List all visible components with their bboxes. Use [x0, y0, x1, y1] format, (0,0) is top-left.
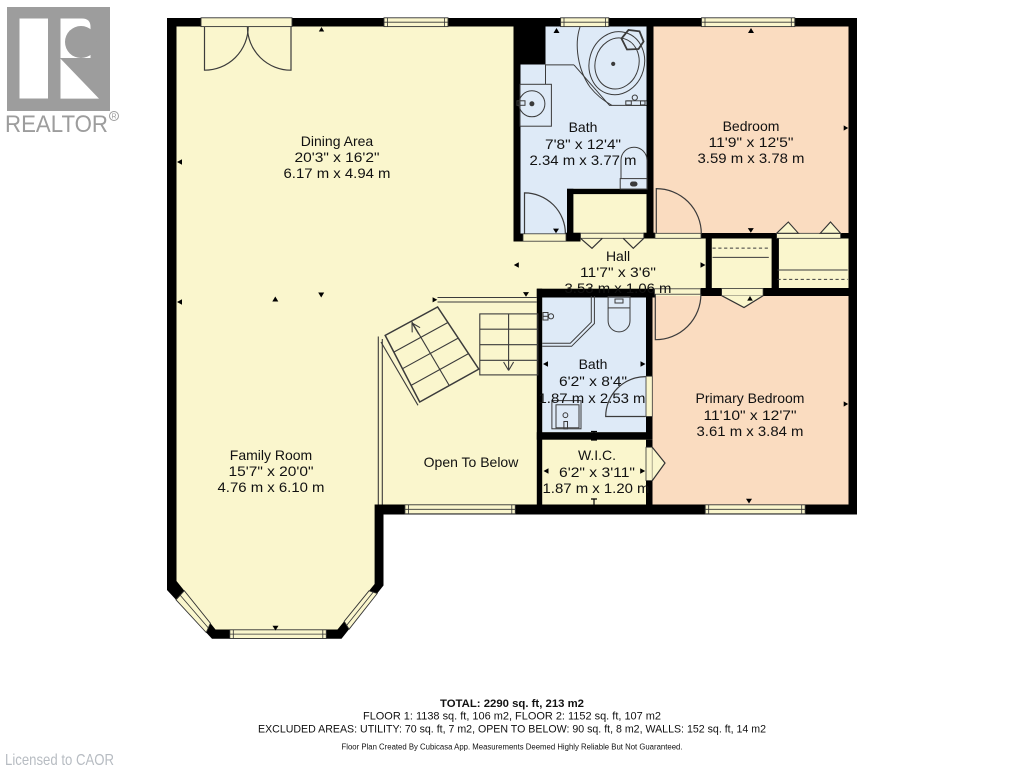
svg-text:Primary Bedroom: Primary Bedroom: [696, 390, 805, 406]
svg-text:3.59 m x 3.78 m: 3.59 m x 3.78 m: [698, 150, 805, 166]
svg-text:R: R: [111, 114, 116, 121]
svg-text:FLOOR 1: 1138 sq. ft, 106 m2,: FLOOR 1: 1138 sq. ft, 106 m2, FLOOR 2: 1…: [363, 711, 661, 723]
svg-text:Floor Plan Created By Cubicasa: Floor Plan Created By Cubicasa App. Meas…: [342, 743, 683, 752]
svg-text:Licensed to CAOR: Licensed to CAOR: [5, 752, 114, 768]
svg-text:1.87 m x 2.53 m: 1.87 m x 2.53 m: [539, 390, 646, 406]
svg-text:W.I.C.: W.I.C.: [578, 447, 616, 463]
svg-text:EXCLUDED AREAS: UTILITY: 70 sq: EXCLUDED AREAS: UTILITY: 70 sq. ft, 7 m2…: [258, 724, 766, 736]
svg-text:2.34 m x 3.77 m: 2.34 m x 3.77 m: [530, 152, 637, 168]
svg-text:15'7" x 20'0": 15'7" x 20'0": [229, 463, 314, 479]
svg-text:Hall: Hall: [606, 248, 630, 264]
svg-text:6.17 m x 4.94 m: 6.17 m x 4.94 m: [284, 165, 391, 181]
svg-text:11'9" x 12'5": 11'9" x 12'5": [709, 134, 794, 150]
svg-text:11'10" x 12'7": 11'10" x 12'7": [704, 407, 797, 423]
svg-text:Bath: Bath: [569, 119, 598, 135]
svg-text:TOTAL: 2290 sq. ft, 213 m2: TOTAL: 2290 sq. ft, 213 m2: [440, 698, 584, 710]
svg-text:3.53 m x 1.06 m: 3.53 m x 1.06 m: [565, 280, 672, 296]
svg-text:20'3" x 16'2": 20'3" x 16'2": [295, 149, 380, 165]
svg-text:7'8" x 12'4": 7'8" x 12'4": [545, 136, 621, 152]
svg-text:6'2" x 3'11": 6'2" x 3'11": [559, 464, 635, 480]
svg-text:6'2" x 8'4": 6'2" x 8'4": [559, 373, 627, 389]
svg-text:1.87 m x 1.20 m: 1.87 m x 1.20 m: [543, 480, 650, 496]
svg-text:11'7" x 3'6": 11'7" x 3'6": [580, 264, 656, 280]
svg-text:Family Room: Family Room: [230, 447, 312, 463]
svg-text:3.61 m x 3.84 m: 3.61 m x 3.84 m: [697, 423, 804, 439]
svg-text:4.76 m x 6.10 m: 4.76 m x 6.10 m: [218, 479, 325, 495]
svg-text:Open To Below: Open To Below: [424, 454, 520, 470]
svg-text:REALTOR: REALTOR: [5, 111, 108, 138]
svg-text:Bath: Bath: [579, 356, 608, 372]
svg-text:Bedroom: Bedroom: [723, 118, 780, 134]
svg-text:Dining Area: Dining Area: [301, 133, 374, 149]
